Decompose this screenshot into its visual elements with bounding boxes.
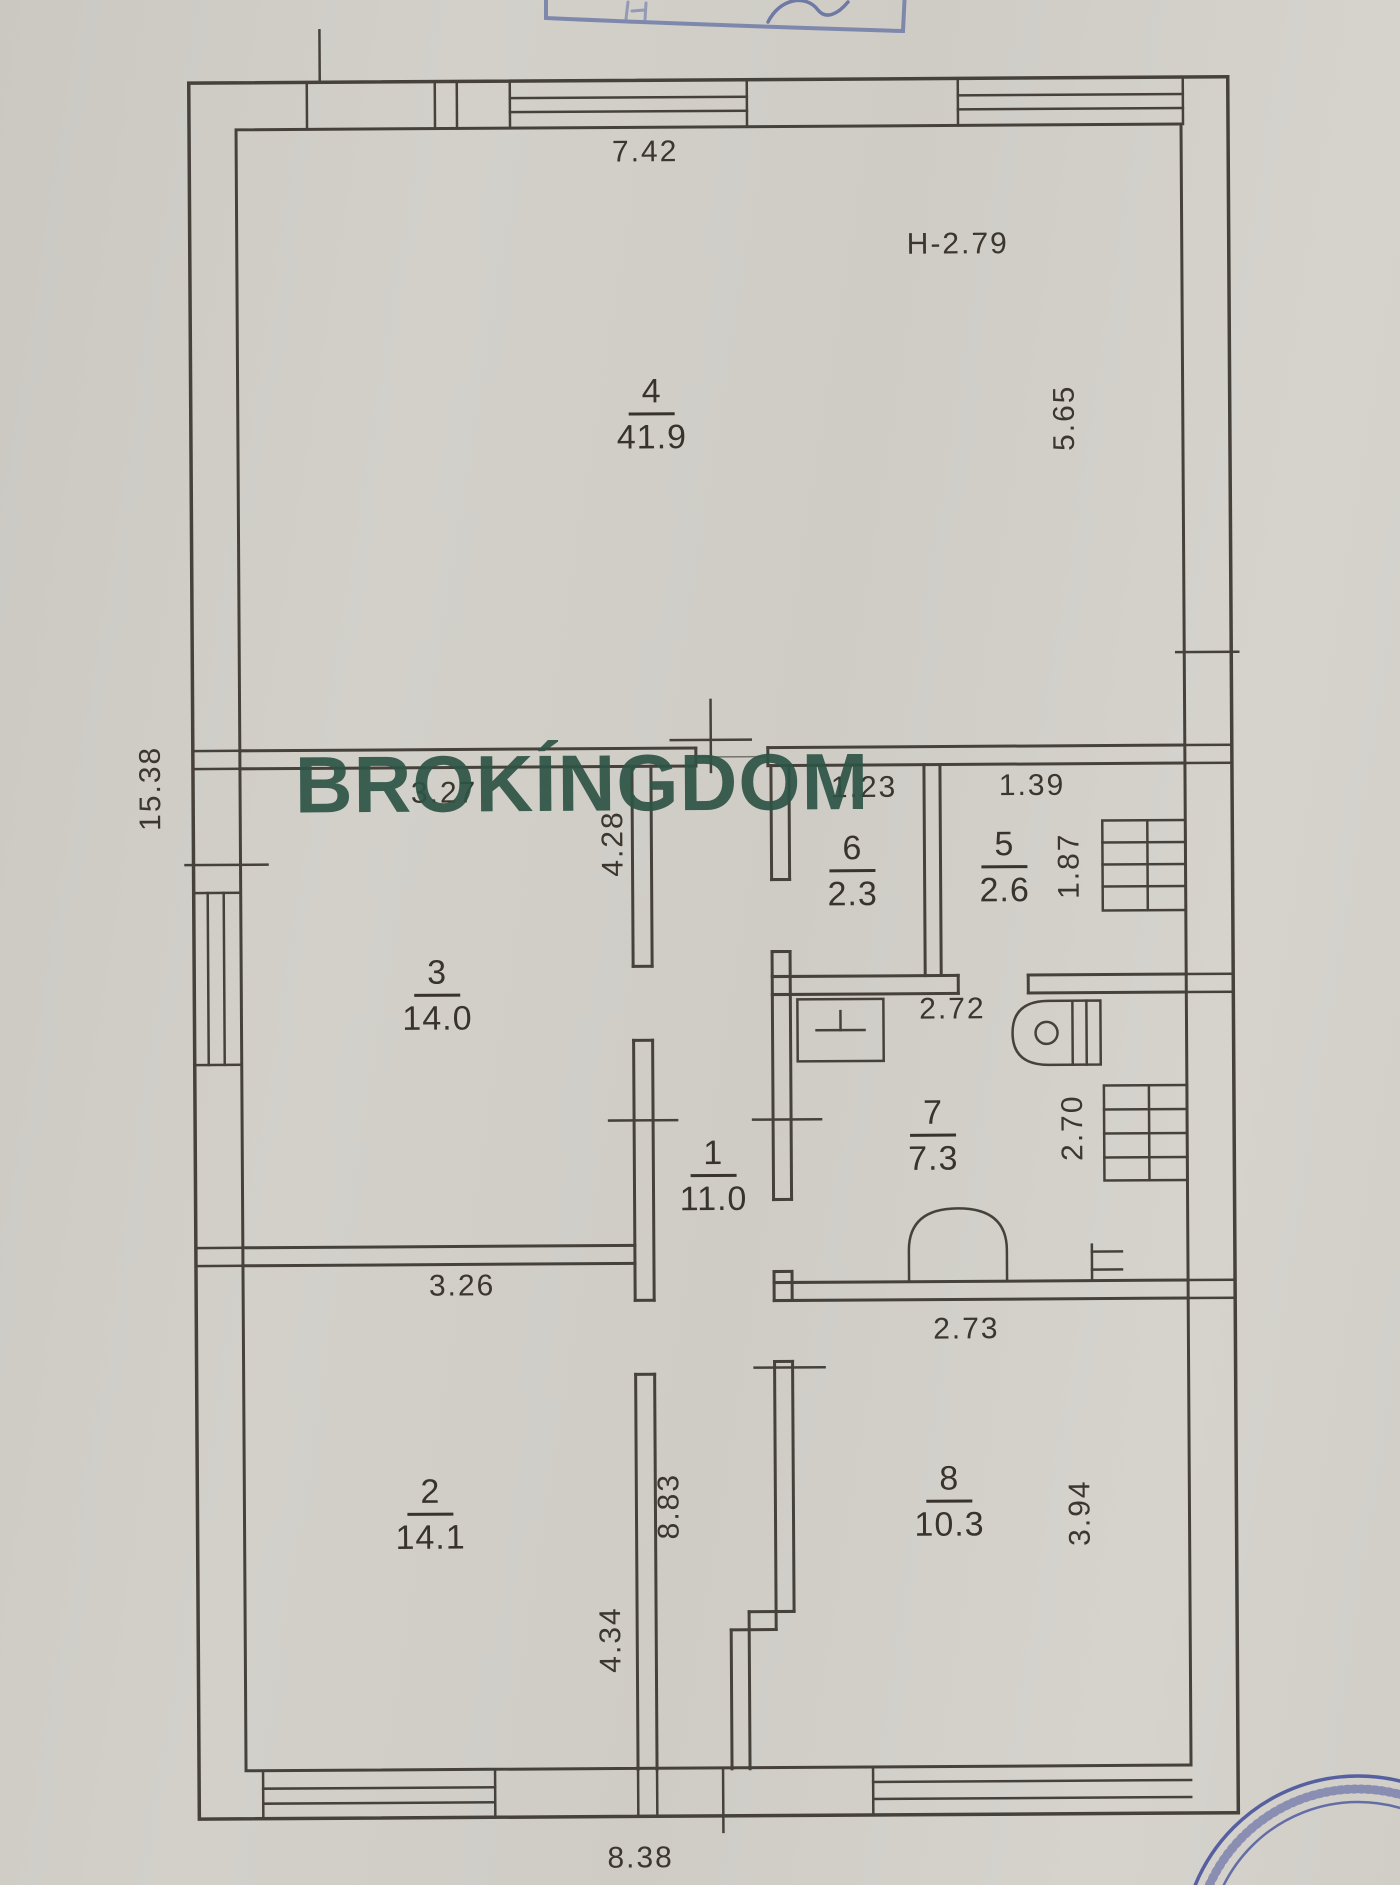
scanned-floorplan-page: 7.42 H-2.79 5.65 15.38 4 41.9 3.27 4.28 … [0,0,1400,1885]
round-stamp-fragment [1182,1776,1400,1885]
top-stamp-fragment [546,0,905,31]
stamp-overlays [0,0,1400,1885]
